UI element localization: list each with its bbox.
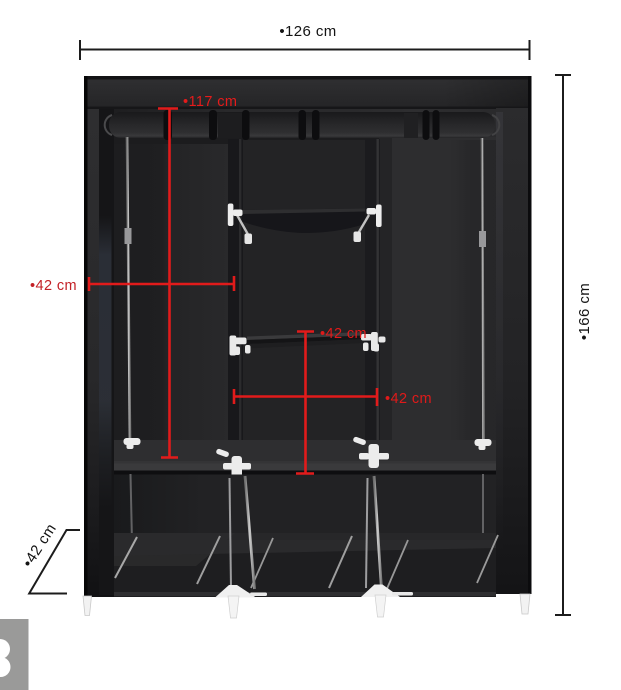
svg-text:•117 cm: •117 cm bbox=[183, 94, 237, 110]
svg-text:•42 cm: •42 cm bbox=[385, 391, 432, 407]
svg-text:•42 cm: •42 cm bbox=[320, 326, 367, 342]
svg-text:•166 cm: •166 cm bbox=[576, 283, 593, 340]
svg-text:•42 cm: •42 cm bbox=[30, 278, 77, 294]
svg-text:•126 cm: •126 cm bbox=[279, 23, 336, 40]
